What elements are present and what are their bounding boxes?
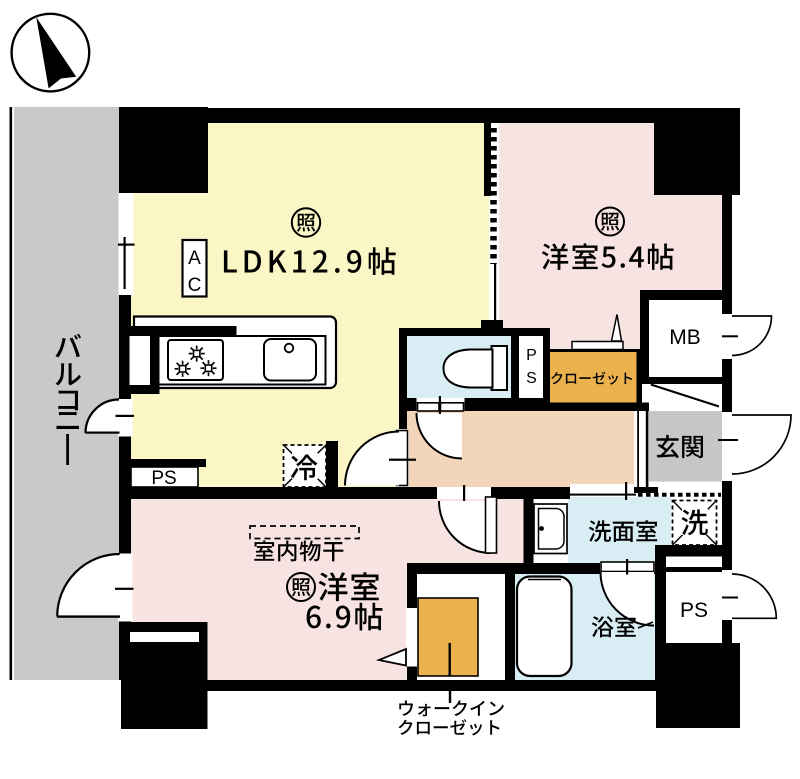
svg-text:S: S xyxy=(526,370,537,387)
svg-text:PS: PS xyxy=(151,468,176,489)
svg-text:A: A xyxy=(188,248,201,269)
svg-text:MB: MB xyxy=(669,326,701,349)
svg-text:C: C xyxy=(188,275,202,296)
svg-text:PS: PS xyxy=(680,599,708,622)
svg-text:P: P xyxy=(526,347,537,364)
